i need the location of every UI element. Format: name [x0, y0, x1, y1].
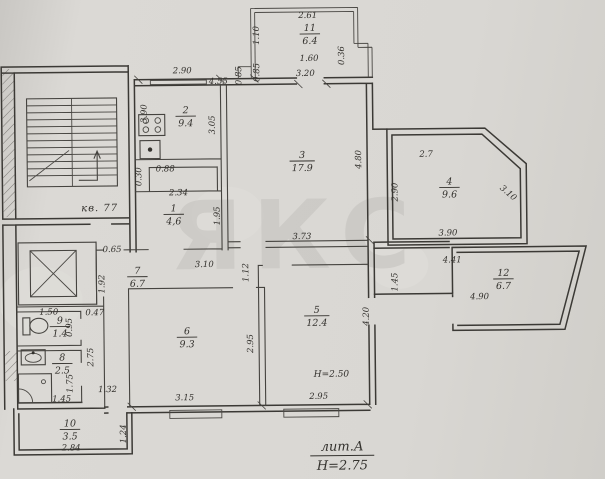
floor-height-label: Н=2.75 — [316, 458, 368, 474]
dimension-label: 3.90 — [438, 228, 458, 238]
dimension-label: 1.45 — [390, 273, 400, 292]
floor-plan-svg: ЯКС — [0, 0, 605, 479]
dimension-label: 3.90 — [140, 104, 150, 124]
room-label-2: 29.4 — [175, 105, 196, 129]
room-label-12: 126.7 — [493, 268, 514, 292]
dimension-label: 3.05 — [208, 115, 218, 134]
room-number: 2 — [182, 105, 189, 116]
dimension-label: 0.36 — [337, 45, 347, 65]
dimension-label: 4.55 — [208, 77, 228, 87]
room-number: 11 — [304, 23, 316, 34]
dimension-label: 2.95 — [308, 392, 328, 402]
dimension-label: 0.85 — [234, 66, 244, 85]
dimension-label: 4.80 — [354, 149, 364, 170]
scanned-floor-plan: ЯКС — [0, 0, 605, 479]
dimension-label: 2.90 — [172, 66, 193, 76]
room-area: 9.3 — [179, 339, 194, 350]
room-number: 3 — [299, 150, 305, 161]
dimension-label: 3.20 — [296, 69, 316, 79]
dimension-label: 0.85 — [252, 63, 262, 82]
room-label-7: 76.7 — [127, 266, 148, 290]
shower-tray-icon — [18, 374, 51, 403]
annotation-labels: Н=2.50 — [313, 370, 350, 380]
room-number: 10 — [64, 418, 76, 429]
dimension-label: 3.15 — [175, 393, 194, 403]
room-area: 9.6 — [442, 189, 457, 200]
dimension-label: 1.12 — [241, 263, 251, 282]
dimension-label: 4.41 — [442, 255, 462, 265]
room-area: 4,6 — [165, 216, 181, 227]
room-label-5: 512.4 — [304, 305, 329, 329]
room-number: 12 — [497, 268, 509, 279]
room-label-10: 103.5 — [60, 418, 81, 442]
stair-direction-arrow-icon — [79, 151, 100, 180]
dimension-label: 3.10 — [195, 260, 215, 270]
room-label-4: 49.6 — [439, 176, 460, 200]
dimension-label: 1.10 — [252, 25, 262, 45]
dimension-label: 1.92 — [97, 275, 107, 294]
room-area: 6.7 — [130, 279, 146, 290]
dimension-label: 1.60 — [300, 54, 320, 64]
dimension-label: 1.95 — [213, 206, 223, 225]
dimension-label: 3.73 — [292, 232, 311, 242]
dimension-label: 2.75 — [86, 348, 96, 368]
dimension-label: 1.24 — [119, 424, 129, 443]
window — [284, 409, 339, 418]
stair-treads — [27, 98, 118, 187]
dimension-label: 0.88 — [156, 164, 176, 174]
room-area: 6.7 — [496, 281, 512, 292]
room-label-6: 69.3 — [177, 326, 198, 350]
room-area: 12.4 — [306, 318, 327, 329]
hatched-wall — [5, 351, 17, 381]
dimension-label: 2.84 — [61, 443, 81, 453]
apartment-number-label: кв. 77 — [81, 203, 118, 214]
window — [150, 80, 206, 85]
dimension-label: 1.50 — [39, 308, 59, 318]
dimension-label: 0.30 — [134, 167, 144, 187]
dimension-label: 4.20 — [362, 306, 372, 327]
washbasin-icon — [21, 350, 45, 365]
room-number: 6 — [184, 326, 190, 337]
room-area: 17.9 — [292, 163, 313, 174]
room-area: 9.4 — [178, 118, 193, 129]
dimension-label: 2.95 — [246, 334, 256, 354]
room-label-8: 82.5 — [52, 352, 73, 376]
room-area: 6.4 — [302, 36, 317, 47]
staircase-icon — [27, 98, 118, 187]
dimension-label: 3.10 — [497, 183, 518, 203]
kitchen-sink-icon — [140, 140, 160, 158]
room-label-11: 116.4 — [300, 23, 321, 47]
dimension-label: 4.90 — [469, 292, 490, 302]
dimension-label: 2.34 — [168, 188, 188, 198]
room-number: 1 — [171, 203, 177, 214]
dimension-label: 0.95 — [65, 318, 75, 337]
room-number: 7 — [134, 266, 141, 277]
dimension-label: 0.65 — [103, 245, 122, 255]
dimension-label: 0.47 — [85, 308, 105, 318]
dimension-label: 1.45 — [52, 394, 71, 404]
room-label-3: 317.9 — [289, 150, 314, 174]
dimension-label: 2.61 — [297, 11, 317, 21]
dimension-label: 2.7 — [418, 150, 433, 160]
ceiling-height-note: Н=2.50 — [313, 370, 350, 380]
room-area: 3.5 — [62, 431, 77, 442]
dimension-label: 1.32 — [98, 385, 117, 395]
litera-label: лит.А — [321, 439, 364, 454]
title-block: лит.А Н=2.75 — [310, 439, 374, 474]
room-number: 5 — [314, 305, 320, 316]
title-fraction-line — [310, 455, 374, 456]
window — [170, 410, 222, 419]
dimension-label: 1.75 — [65, 374, 75, 393]
room-number: 4 — [445, 176, 452, 187]
dimension-label: 2.90 — [390, 182, 400, 203]
room-number: 8 — [59, 352, 65, 363]
